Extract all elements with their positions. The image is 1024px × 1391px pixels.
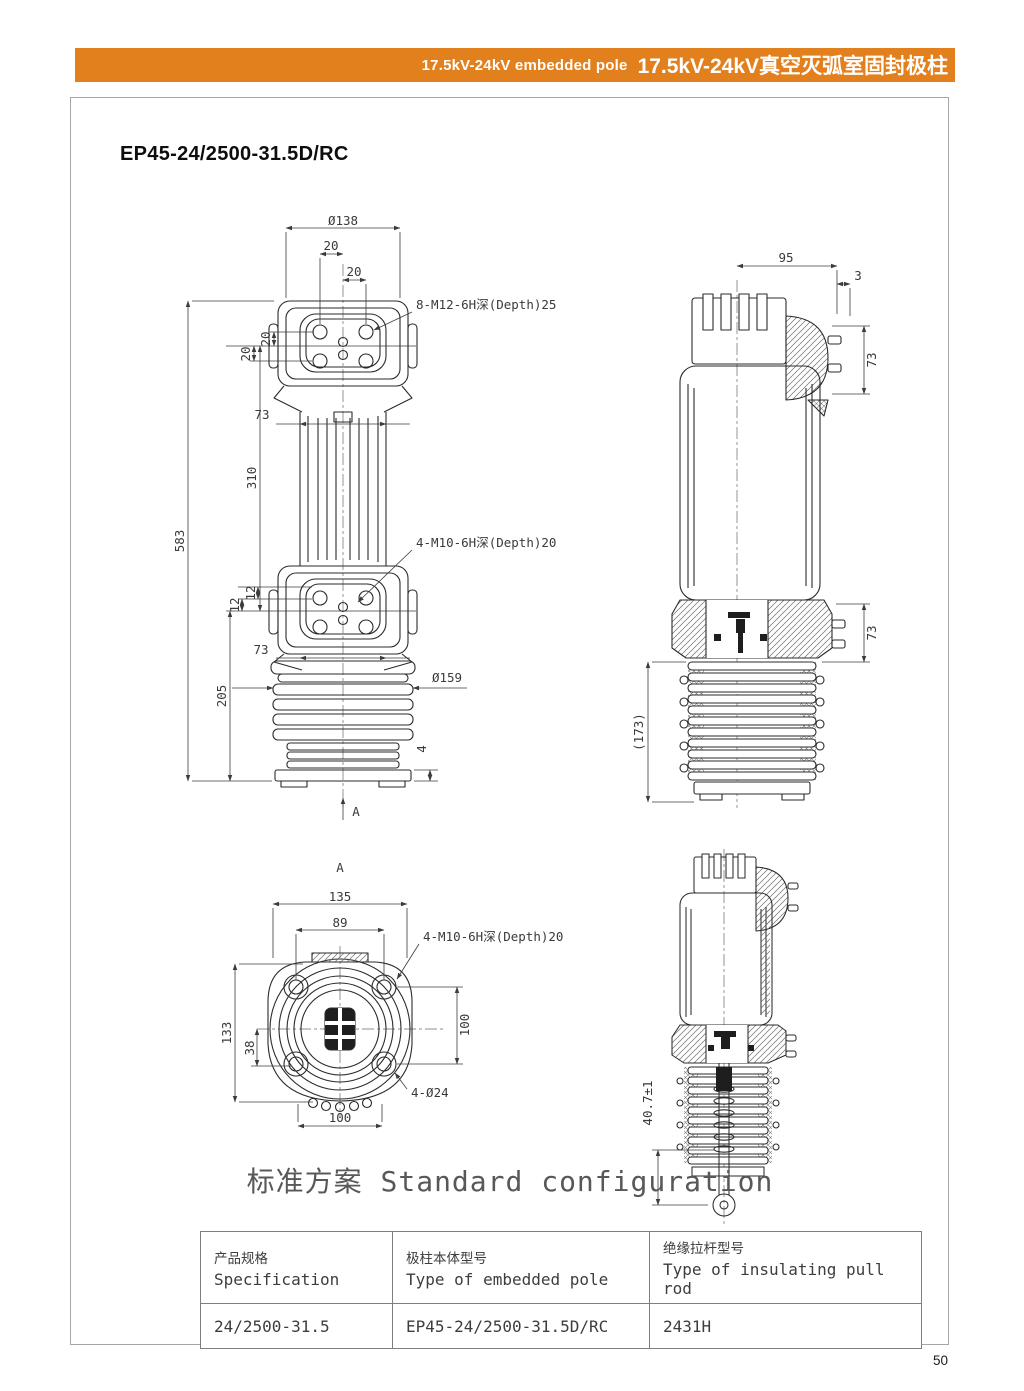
catalog-page: { "accent": "#E2801E", "header": { "titl… [0, 0, 1024, 1391]
dim-100-right-label: 100 [459, 1014, 472, 1037]
bolt-callout-top-label: 8-M12-6H深(Depth)25 [416, 299, 556, 312]
col-rod-type-header: 绝缘拉杆型号 Type of insulating pull rod [650, 1232, 922, 1304]
col1-en: Specification [214, 1270, 379, 1289]
table-data-row: 24/2500-31.5 EP45-24/2500-31.5D/RC 2431H [201, 1304, 922, 1349]
bottom-view-drawing: A 135 89 4-M10-6H深(Depth)20 133 38 100 4… [205, 852, 585, 1152]
front-view-drawing: Ø138 20 20 8-M12-6H深(Depth)25 20 20 73 3… [162, 206, 557, 831]
dim-4-label: 4 [416, 745, 429, 753]
col2-en: Type of embedded pole [406, 1270, 636, 1289]
hole-callout-label: 4-Ø24 [411, 1087, 449, 1100]
dim-205-label: 205 [216, 685, 229, 708]
dim-20a-label: 20 [323, 240, 338, 253]
col2-zh: 极柱本体型号 [406, 1247, 636, 1267]
bolt-callout-mid-label: 4-M10-6H深(Depth)20 [416, 537, 556, 550]
dim-73-bottom-label: 73 [253, 644, 268, 657]
dim-135-label: 135 [329, 891, 352, 904]
bottom-view-svg [205, 852, 585, 1152]
dim-583-label: 583 [174, 530, 187, 553]
col3-zh: 绝缘拉杆型号 [663, 1237, 908, 1257]
dim-73-upper-label: 73 [866, 352, 879, 367]
cell-rod-type: 2431H [650, 1304, 922, 1349]
col-specification-header: 产品规格 Specification [201, 1232, 393, 1304]
dim-73-top-label: 73 [254, 409, 269, 422]
section-arrow-label: A [352, 806, 360, 819]
dim-38-label: 38 [244, 1040, 257, 1055]
dim-173-label: (173) [633, 713, 646, 751]
col1-zh: 产品规格 [214, 1247, 379, 1267]
col-pole-type-header: 极柱本体型号 Type of embedded pole [393, 1232, 650, 1304]
dim-89-label: 89 [332, 917, 347, 930]
heading-zh: 标准方案 [247, 1165, 363, 1198]
cell-pole-type: EP45-24/2500-31.5D/RC [393, 1304, 650, 1349]
dim-dia138-label: Ø138 [328, 215, 358, 228]
dim-95-label: 95 [778, 252, 793, 265]
header-title-en: 17.5kV-24kV embedded pole [422, 57, 628, 74]
page-number: 50 [933, 1353, 948, 1368]
header-title-zh: 17.5kV-24kV真空灭弧室固封极柱 [638, 50, 948, 80]
dim-12b-label: 12 [229, 597, 242, 612]
heading-en: Standard configuration [381, 1165, 774, 1198]
dim-v20a-label: 20 [260, 331, 273, 346]
side-view-svg [614, 236, 944, 816]
dim-133-label: 133 [221, 1022, 234, 1045]
standard-configuration-heading: 标准方案 Standard configuration [70, 1160, 950, 1200]
dim-v20b-label: 20 [240, 346, 253, 361]
header-bar: 17.5kV-24kV embedded pole 17.5kV-24kV真空灭… [75, 48, 955, 82]
bolt-callout-bottom-label: 4-M10-6H深(Depth)20 [423, 931, 563, 944]
dim-100-bottom-label: 100 [329, 1112, 352, 1125]
table-header-row: 产品规格 Specification 极柱本体型号 Type of embedd… [201, 1232, 922, 1304]
configuration-table: 产品规格 Specification 极柱本体型号 Type of embedd… [200, 1231, 922, 1349]
view-a-label: A [336, 862, 344, 875]
dim-12a-label: 12 [245, 585, 258, 600]
side-view-drawing: 95 3 73 73 (173) [614, 236, 944, 816]
dim-3-label: 3 [854, 270, 862, 283]
dim-20b-label: 20 [346, 266, 361, 279]
col3-en: Type of insulating pull rod [663, 1260, 908, 1298]
dim-73-lower-label: 73 [866, 625, 879, 640]
dim-dia159-label: Ø159 [432, 672, 462, 685]
dim-40-7-label: 40.7±1 [642, 1080, 655, 1125]
cell-specification: 24/2500-31.5 [201, 1304, 393, 1349]
dim-310-label: 310 [246, 467, 259, 490]
page-title: EP45-24/2500-31.5D/RC [120, 143, 349, 166]
